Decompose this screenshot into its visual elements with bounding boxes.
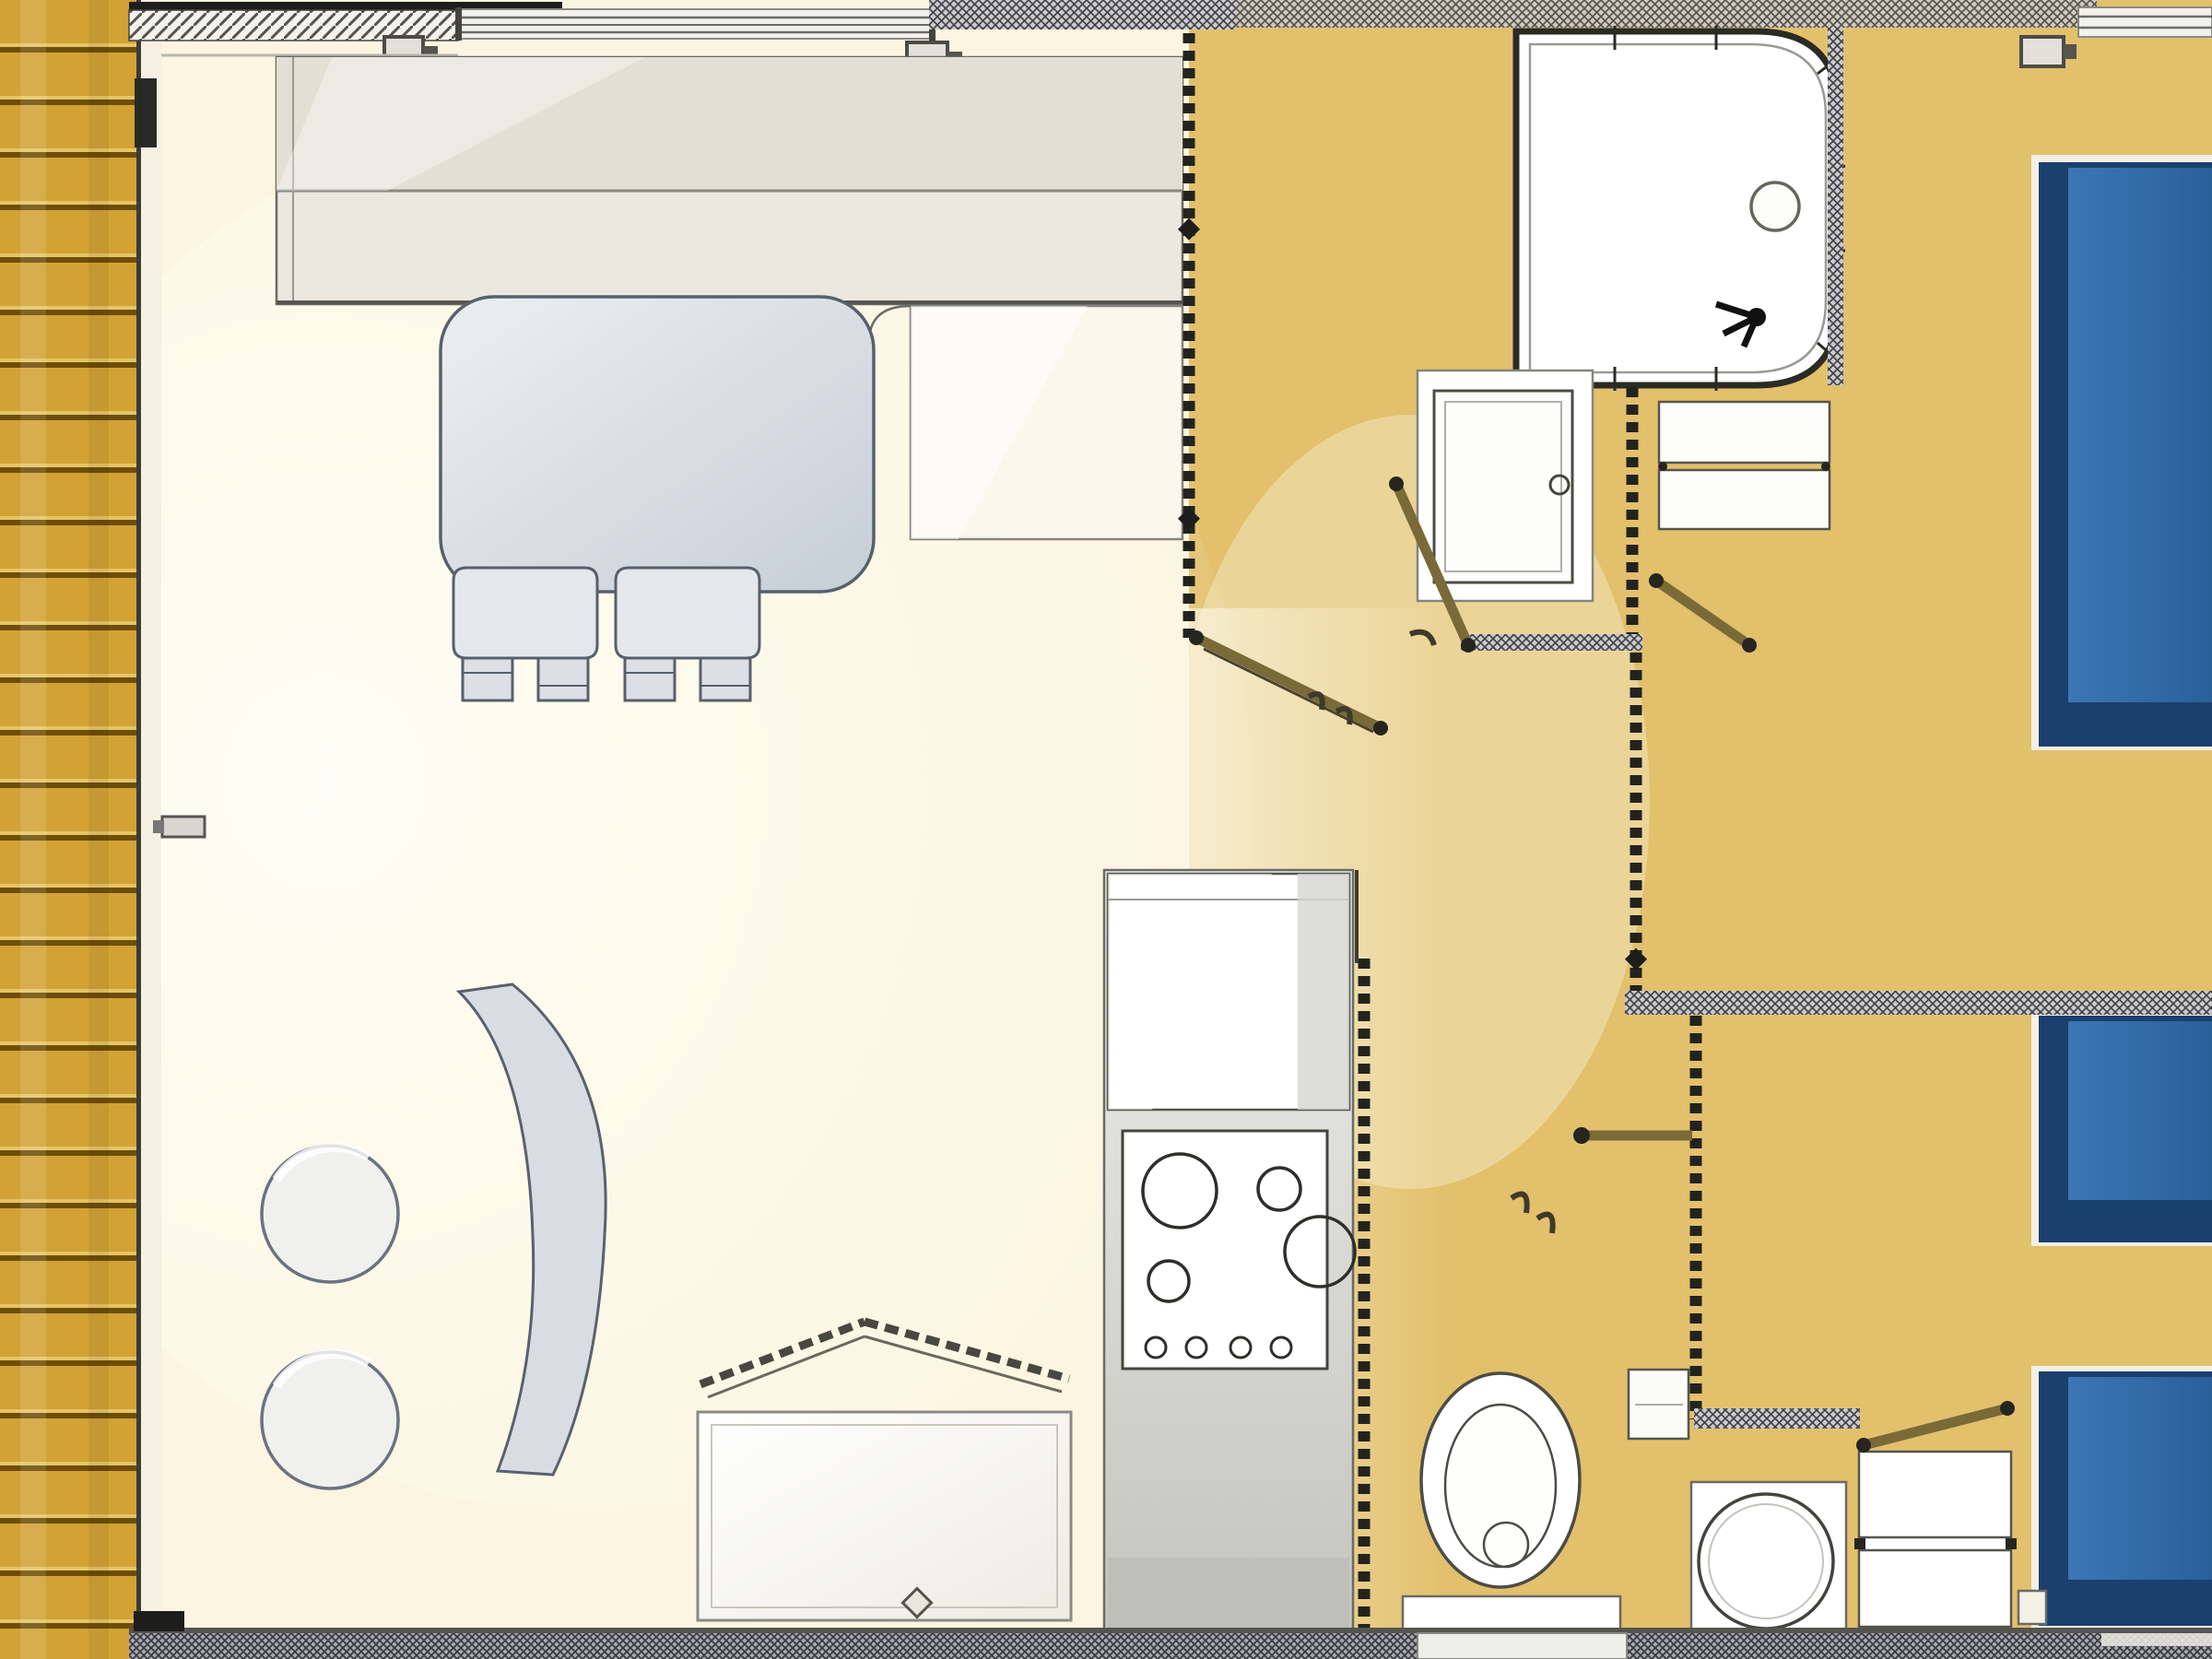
window-living-top xyxy=(455,7,935,41)
wall-bathroom-bottom xyxy=(1461,634,1642,651)
single-bed-2 xyxy=(2018,1366,2212,1628)
floor-plan xyxy=(0,0,2212,1659)
deck-shade xyxy=(88,0,109,1659)
bottom-wall-light xyxy=(2101,1633,2212,1646)
hob-4-burners xyxy=(1123,1131,1355,1369)
shower-control xyxy=(1751,182,1799,230)
wall-washroom-top xyxy=(1694,1408,1860,1429)
wall-crosshatch-top-mid xyxy=(929,0,1235,29)
wall-bedroom-divider xyxy=(1625,991,2212,1015)
double-bed xyxy=(2031,155,2212,750)
toilet xyxy=(1421,1373,1580,1587)
bed-post xyxy=(2018,1591,2046,1624)
corner-cabinet xyxy=(870,306,1182,539)
kitchen-counter xyxy=(1108,1558,1349,1631)
wall-bottom xyxy=(129,1633,2212,1659)
lounge-bench xyxy=(276,57,1182,304)
round-washbasin xyxy=(1699,1494,1833,1629)
floor-plan-svg xyxy=(0,0,2212,1659)
kitchen xyxy=(1104,870,1355,1633)
left-wall-line xyxy=(136,0,141,1659)
vanity-unit xyxy=(1418,371,1593,601)
deck-sheen xyxy=(20,0,46,1659)
window-bedroom-top-right xyxy=(2078,7,2212,37)
bottom-hinge xyxy=(134,1611,184,1631)
stool-1 xyxy=(262,1146,398,1282)
wall-bathroom-right xyxy=(1828,28,1843,385)
fridge-cabinet xyxy=(1108,874,1349,1110)
drawer-unit xyxy=(1854,1452,2017,1627)
stool-2 xyxy=(262,1352,398,1488)
corner-trim xyxy=(135,78,157,147)
dining-table xyxy=(441,297,874,592)
bedroom-double xyxy=(2031,155,2212,750)
single-bed-1 xyxy=(2031,1010,2212,1246)
bottom-wall-opening xyxy=(1418,1633,1627,1659)
shower-cubicle xyxy=(1516,26,1845,391)
wall-crosshatch-top-right xyxy=(1235,0,2097,28)
